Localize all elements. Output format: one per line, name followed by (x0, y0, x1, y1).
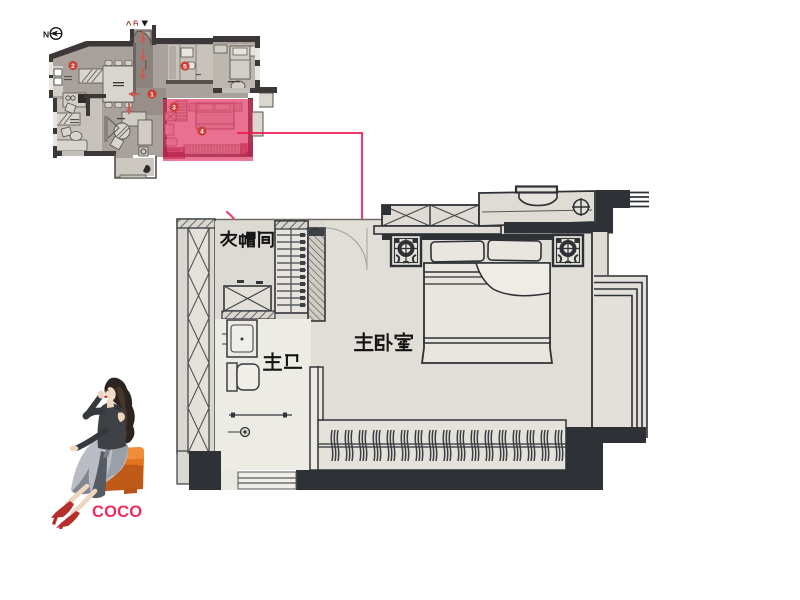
svg-text:4: 4 (200, 128, 204, 135)
svg-text:1: 1 (150, 91, 154, 98)
svg-text:N: N (43, 30, 49, 40)
svg-text:COCO: COCO (92, 503, 142, 521)
svg-text:2: 2 (71, 63, 75, 70)
svg-text:5: 5 (183, 63, 187, 70)
svg-text:3: 3 (172, 104, 176, 111)
